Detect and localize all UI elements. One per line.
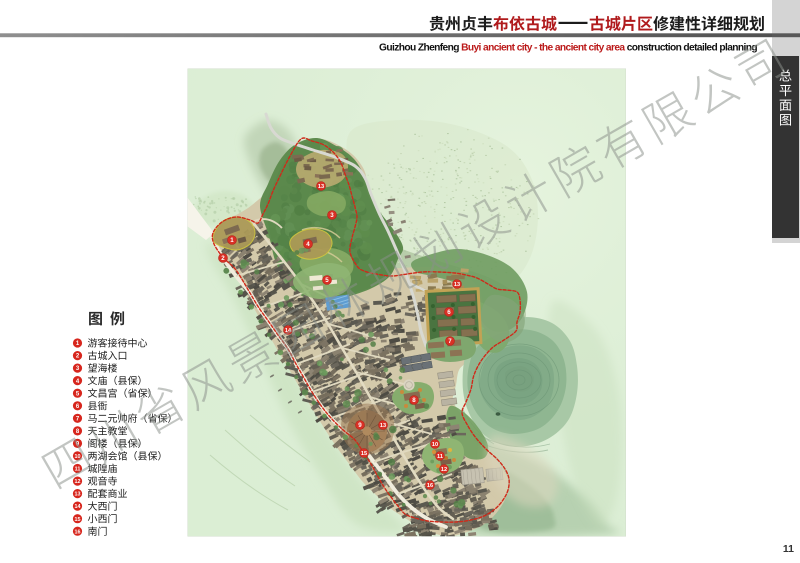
- svg-text:9: 9: [358, 422, 362, 429]
- svg-text:2: 2: [221, 255, 225, 262]
- svg-text:7: 7: [448, 338, 452, 345]
- svg-text:15: 15: [75, 517, 81, 523]
- svg-text:Guizhou Zhenfeng Buyi ancient: Guizhou Zhenfeng Buyi ancient city - the…: [379, 43, 757, 54]
- svg-text:14: 14: [75, 504, 81, 510]
- svg-text:3: 3: [330, 212, 334, 219]
- svg-text:13: 13: [380, 423, 386, 429]
- svg-text:11: 11: [437, 454, 443, 460]
- svg-text:10: 10: [432, 442, 438, 448]
- svg-text:15: 15: [361, 451, 367, 457]
- svg-text:11: 11: [783, 543, 794, 555]
- svg-text:12: 12: [75, 479, 81, 485]
- svg-text:16: 16: [75, 529, 81, 535]
- svg-text:4: 4: [306, 241, 310, 248]
- svg-text:16: 16: [427, 483, 433, 489]
- svg-text:8: 8: [412, 397, 416, 404]
- svg-text:13: 13: [454, 282, 460, 288]
- svg-text:1: 1: [230, 237, 234, 244]
- svg-text:6: 6: [447, 309, 451, 316]
- svg-text:12: 12: [441, 467, 447, 473]
- svg-text:5: 5: [325, 277, 329, 284]
- svg-text:13: 13: [318, 184, 324, 190]
- svg-text:13: 13: [75, 492, 81, 498]
